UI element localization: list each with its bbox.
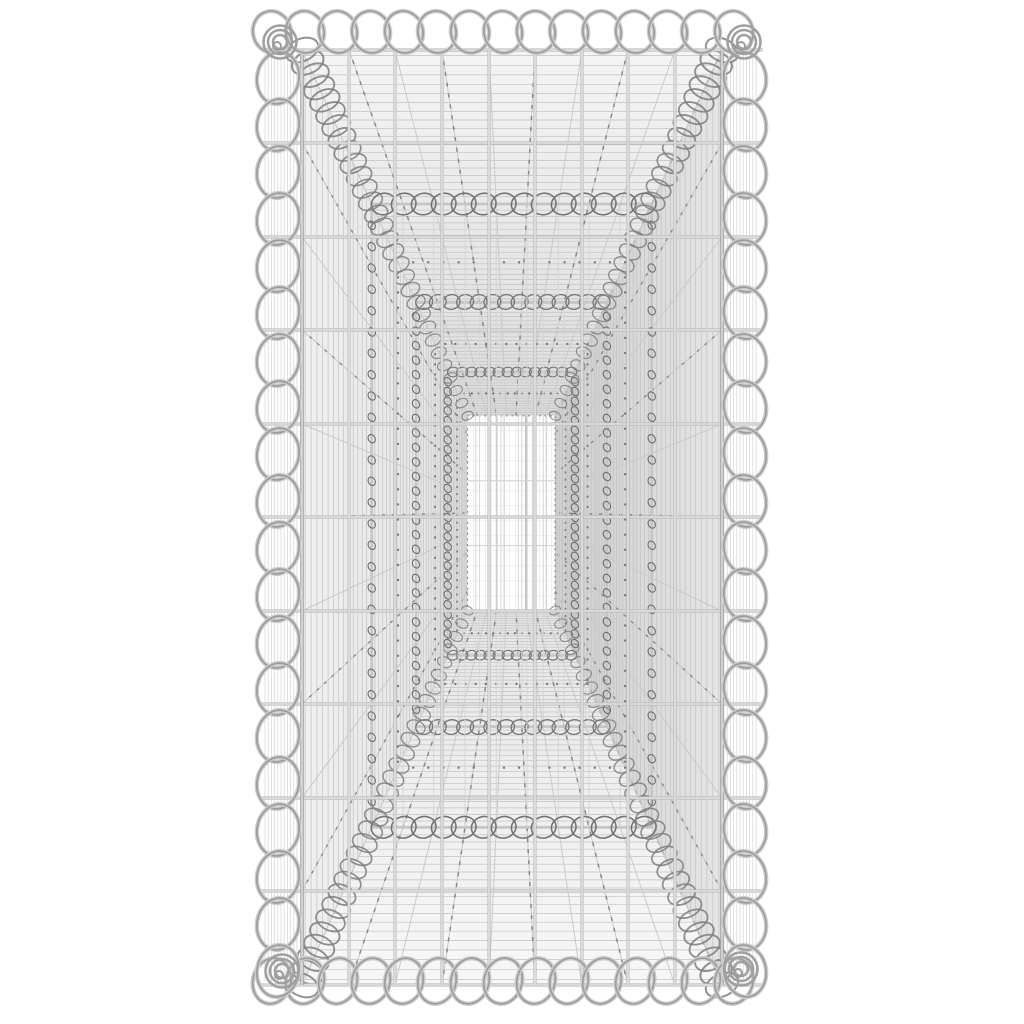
gabion-basket-photo: Product photo: empty galvanized steel ga… (0, 0, 1024, 1024)
back-mesh-panel (468, 416, 556, 611)
product-photo-canvas: Product photo: empty galvanized steel ga… (0, 0, 1024, 1024)
